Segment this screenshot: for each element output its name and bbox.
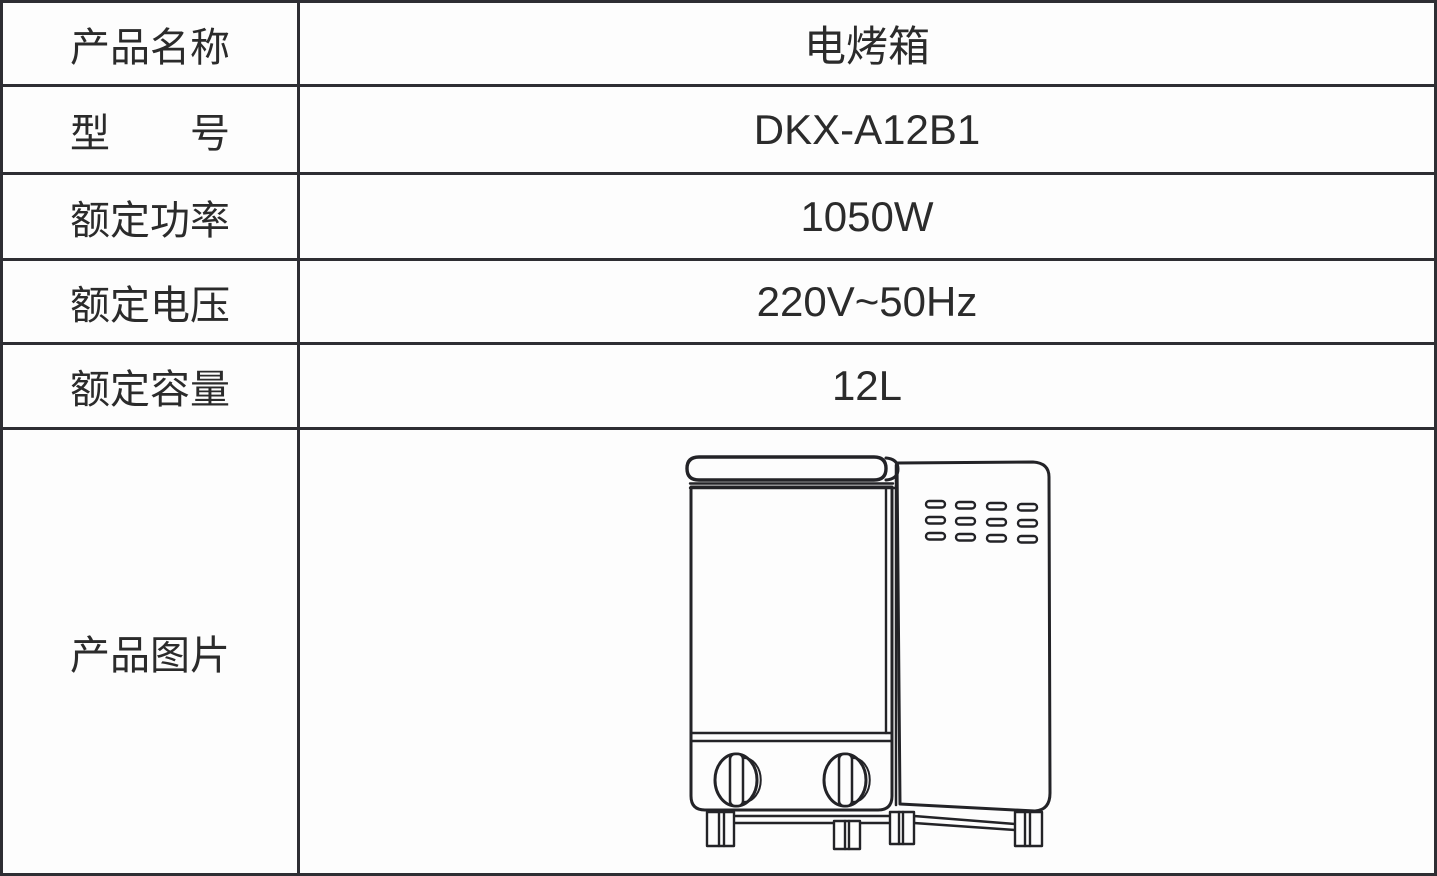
spec-value-product-name: 电烤箱 xyxy=(300,3,1434,87)
spec-label-rated-capacity: 额定容量 xyxy=(3,345,300,430)
electric-oven-line-drawing xyxy=(672,444,1062,859)
product-spec-table: 产品名称 电烤箱 型 号 DKX-A12B1 额定功率 1050W 额定电压 2… xyxy=(0,0,1437,876)
spec-label-rated-power: 额定功率 xyxy=(3,175,300,261)
product-image-cell xyxy=(300,430,1434,873)
spec-value-model: DKX-A12B1 xyxy=(300,87,1434,175)
spec-label-product-name: 产品名称 xyxy=(3,3,300,87)
spec-value-rated-capacity: 12L xyxy=(300,345,1434,430)
spec-value-rated-voltage: 220V~50Hz xyxy=(300,261,1434,345)
spec-label-model: 型 号 xyxy=(3,87,300,175)
spec-label-rated-voltage: 额定电压 xyxy=(3,261,300,345)
spec-label-product-image: 产品图片 xyxy=(3,430,300,873)
spec-value-rated-power: 1050W xyxy=(300,175,1434,261)
